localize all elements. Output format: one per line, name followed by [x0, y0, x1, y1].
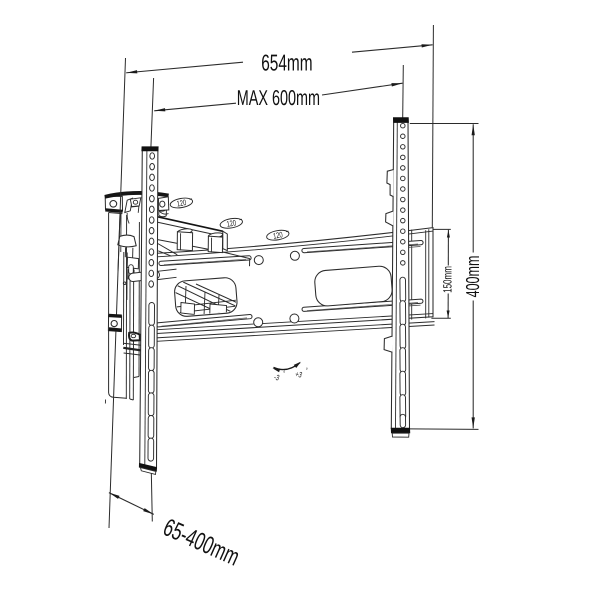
svg-text:150mm: 150mm: [441, 266, 455, 293]
svg-text:120: 120: [226, 218, 237, 229]
svg-text:654mm: 654mm: [261, 49, 312, 75]
svg-text:MAX 600mm: MAX 600mm: [237, 86, 320, 110]
svg-text:120: 120: [272, 230, 283, 241]
svg-text:120: 120: [176, 198, 187, 209]
svg-text:400mm: 400mm: [462, 256, 483, 298]
